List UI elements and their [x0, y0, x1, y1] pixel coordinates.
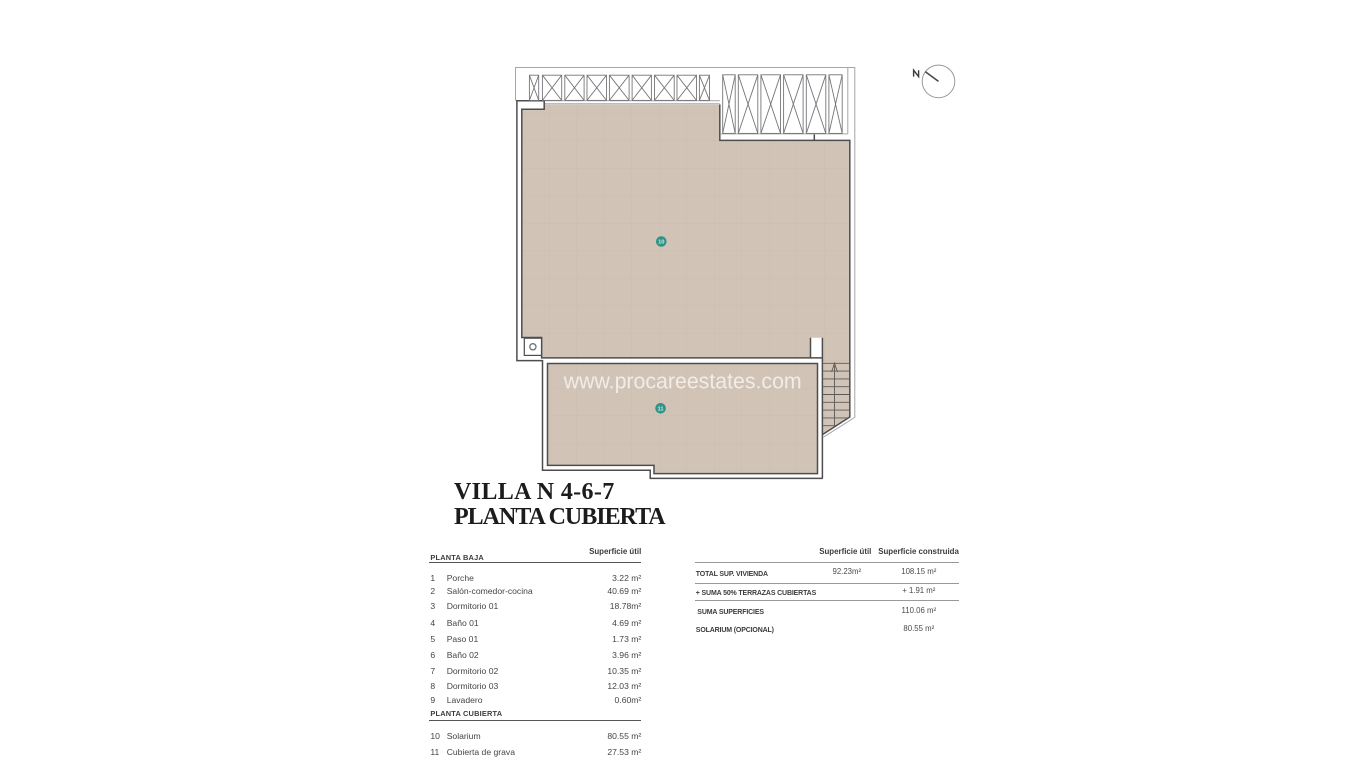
svg-text:11: 11	[658, 407, 665, 413]
svg-text:10: 10	[658, 240, 664, 246]
svg-text:www.procareestates.com: www.procareestates.com	[563, 369, 802, 394]
